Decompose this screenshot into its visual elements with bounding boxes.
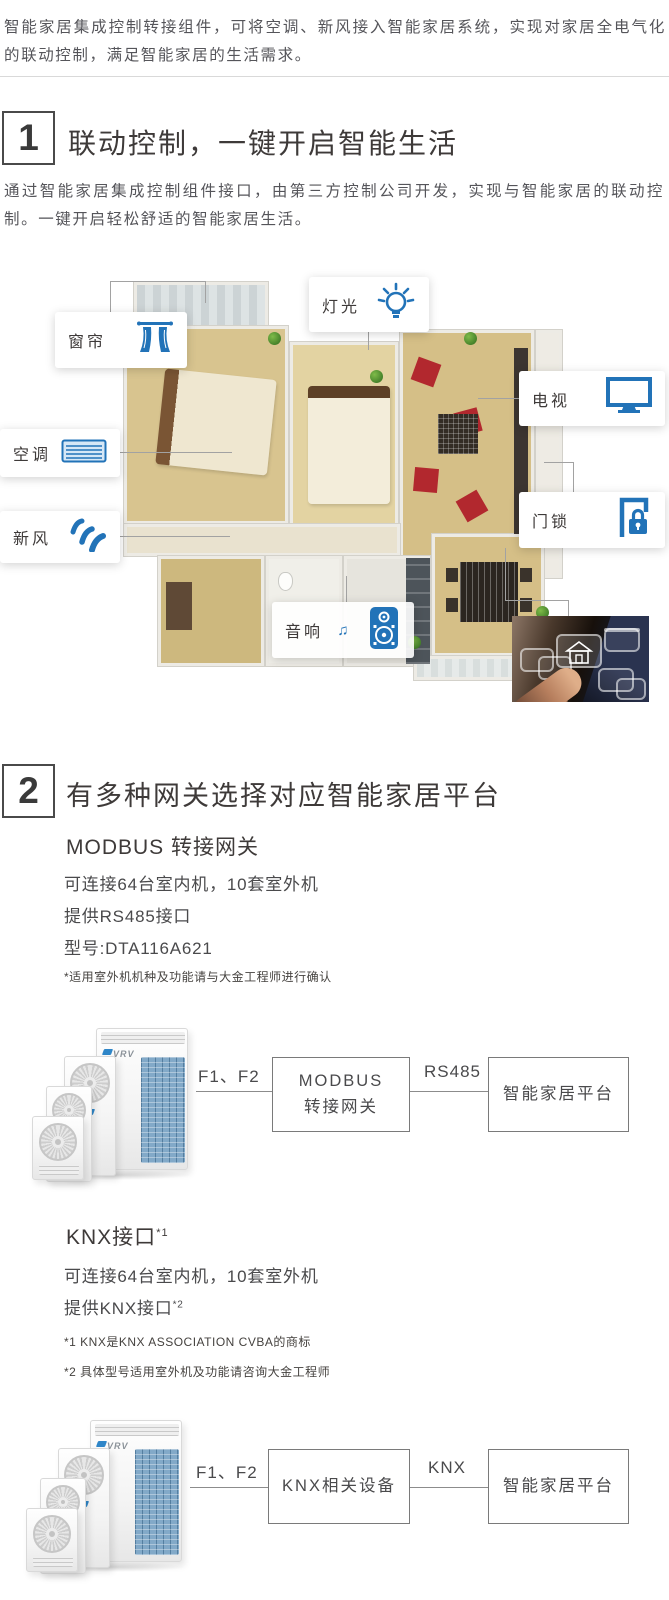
knx-note-1: *1 KNX是KNX ASSOCIATION CVBA的商标 (64, 1333, 311, 1350)
touch-control-photo (512, 616, 649, 702)
unit-heat-exchanger-grille (141, 1057, 185, 1163)
hallway (124, 524, 400, 556)
bed (308, 386, 390, 504)
coffee-table (438, 414, 478, 454)
fan-grille (33, 1515, 71, 1553)
modbus-gateway-box: MODBUS 转接网关 (272, 1057, 410, 1132)
ac-vent-icon (61, 439, 107, 468)
tv-icon (606, 377, 652, 420)
armchair (413, 467, 439, 493)
product-page: 智能家居集成控制转接组件，可将空调、新风接入智能家居系统，实现对家居全电气化的联… (0, 0, 669, 1600)
outdoor-units-photo: VRV (32, 1028, 200, 1180)
label-card-light: 灯光 (309, 277, 429, 332)
connector-line (505, 548, 506, 601)
desk (166, 582, 192, 630)
modbus-platform-label: 智能家居平台 (503, 1082, 614, 1108)
virtual-home-button (556, 634, 602, 668)
unit-top-vents (101, 1032, 185, 1044)
modbus-footnote: *适用室外机机种及功能请与大金工程师进行确认 (64, 968, 332, 985)
connector-line (120, 452, 232, 453)
section1-description: 通过智能家居集成控制组件接口，由第三方控制公司开发，实现与智能家居的联动控制。一… (4, 178, 664, 233)
connector-line (120, 536, 230, 537)
virtual-button (604, 628, 640, 652)
section1-title: 联动控制，一键开启智能生活 (68, 122, 458, 162)
plant (464, 332, 477, 345)
knx-spec-2-sup: *2 (173, 1299, 184, 1310)
section2-number-badge: 2 (2, 764, 55, 818)
label-card-curtain: 窗帘 (55, 312, 187, 368)
plant (370, 370, 383, 383)
outdoor-units-photo: VRV (26, 1420, 194, 1572)
dining-chair (446, 598, 458, 612)
unit-heat-exchanger-grille (135, 1449, 179, 1555)
fresh-air-label: 新风 (13, 525, 51, 549)
unit-top-vents (95, 1424, 179, 1436)
modbus-subtitle: MODBUS 转接网关 (66, 831, 259, 861)
door-lock-label: 门锁 (532, 508, 570, 532)
label-card-tv: 电视 (519, 371, 665, 426)
intro-paragraph: 智能家居集成控制转接组件，可将空调、新风接入智能家居系统，实现对家居全电气化的联… (4, 14, 666, 69)
knx-gateway-box: KNX相关设备 (268, 1449, 410, 1524)
tv-label: 电视 (532, 387, 570, 411)
knx-spec-2: 提供KNX接口*2 (64, 1293, 184, 1324)
vrv-logo: VRV (113, 1049, 135, 1059)
connector-line (110, 281, 111, 313)
door-lock-icon (616, 497, 652, 544)
house-icon (558, 638, 600, 668)
connector-line (505, 600, 569, 601)
dining-table (460, 562, 518, 622)
knx-platform-label: 智能家居平台 (503, 1474, 614, 1500)
speaker-icon (367, 605, 401, 656)
toilet (278, 572, 293, 591)
ac-label: 空调 (13, 441, 51, 465)
fan-grille (39, 1123, 77, 1161)
outdoor-unit-small (26, 1508, 78, 1572)
dining-chair (446, 568, 458, 582)
audio-label: 音响 (285, 618, 323, 642)
modbus-spec-3: 型号:DTA116A621 (64, 933, 213, 964)
light-bulb-icon (376, 281, 416, 328)
music-note-icon: ♫ (337, 622, 348, 639)
unit-bottom-vents (33, 1557, 73, 1567)
wire-line (410, 1487, 488, 1488)
connector-line (478, 398, 519, 399)
label-card-ac: 空调 (0, 429, 120, 477)
modbus-spec-2: 提供RS485接口 (64, 901, 191, 932)
modbus-spec-1: 可连接64台室内机，10套室外机 (64, 869, 319, 900)
knx-protocol-label: KNX (428, 1458, 466, 1478)
unit-bottom-vents (39, 1165, 79, 1175)
knx-gateway-label: KNX相关设备 (282, 1474, 396, 1500)
section1-number: 1 (18, 117, 39, 159)
knx-subtitle-text: KNX接口 (66, 1226, 156, 1249)
section2-number: 2 (18, 770, 39, 812)
modbus-protocol-label: RS485 (424, 1062, 481, 1082)
knx-subtitle-sup: *1 (156, 1227, 168, 1239)
label-card-fresh-air: 新风 (0, 511, 120, 563)
vrv-logo: VRV (107, 1441, 129, 1451)
modbus-gateway-line2: 转接网关 (304, 1095, 378, 1121)
connector-line (346, 576, 347, 602)
connector-line (110, 281, 206, 282)
curtain-label: 窗帘 (68, 328, 106, 352)
connector-line (205, 281, 206, 303)
label-card-audio: 音响 ♫ (272, 602, 414, 658)
wire-line (196, 1091, 272, 1092)
light-label: 灯光 (322, 293, 360, 317)
connector-line (544, 462, 574, 463)
knx-spec-2-text: 提供KNX接口 (64, 1299, 173, 1318)
modbus-platform-box: 智能家居平台 (488, 1057, 629, 1132)
knx-note-2: *2 具体型号适用室外机及功能请咨询大金工程师 (64, 1363, 330, 1380)
connector-line (368, 332, 369, 350)
label-card-door-lock: 门锁 (519, 492, 665, 548)
knx-wire-label: F1、F2 (196, 1458, 258, 1483)
knx-platform-box: 智能家居平台 (488, 1449, 629, 1524)
section2-title: 有多种网关选择对应智能家居平台 (66, 774, 501, 813)
daikin-logo-mark (102, 1049, 113, 1055)
outdoor-unit-small (32, 1116, 84, 1180)
modbus-wire-label: F1、F2 (198, 1062, 260, 1087)
section-divider (0, 76, 669, 77)
curtain-icon (136, 319, 174, 362)
wind-icon (65, 518, 107, 557)
dining-chair (520, 568, 532, 582)
section1-number-badge: 1 (2, 111, 55, 165)
virtual-button (616, 678, 646, 700)
plant (268, 332, 281, 345)
wire-line (410, 1091, 488, 1092)
daikin-logo-mark (96, 1441, 107, 1447)
knx-spec-1: 可连接64台室内机，10套室外机 (64, 1261, 319, 1292)
wire-line (190, 1487, 268, 1488)
bed (155, 368, 276, 475)
knx-subtitle: KNX接口*1 (66, 1221, 169, 1251)
connector-line (568, 600, 569, 617)
modbus-gateway-line1: MODBUS (299, 1069, 383, 1095)
